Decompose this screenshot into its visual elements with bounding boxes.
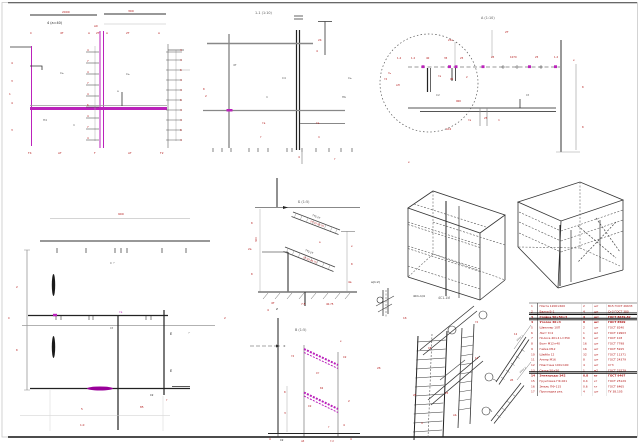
- table-cell: 1: [531, 304, 533, 308]
- table-cell: 8: [583, 358, 585, 362]
- annotation-label: А: [158, 31, 160, 35]
- table-cell: Прокладка рез.: [540, 390, 564, 394]
- annotation-label: 40.75: [326, 302, 334, 306]
- table-cell: 14: [531, 374, 535, 378]
- annotation-label: т2: [384, 77, 388, 81]
- annotation-label: 4: [316, 49, 318, 53]
- table-cell: кг: [594, 384, 598, 388]
- table-cell: ТУ 38.105: [607, 390, 623, 394]
- annotation-label: 2а: [248, 247, 252, 251]
- annotation-label: АТ: [58, 151, 62, 155]
- annotation-label: 25: [484, 116, 488, 120]
- annotation-label: 1-1 (1:10): [255, 11, 273, 15]
- annotation-label: 40: [426, 56, 430, 60]
- annotation-label: 25: [445, 391, 449, 395]
- table-cell: шт: [594, 326, 599, 330]
- table-cell: 8: [531, 342, 533, 346]
- table-cell: 16: [531, 384, 535, 388]
- annotation-label: т.п: [330, 440, 334, 443]
- table-cell: Уголок 40×4: [540, 320, 561, 324]
- annotation-label: АТ: [128, 151, 132, 155]
- annotation-label: 2: [205, 94, 207, 98]
- annotation-label: 12: [475, 356, 479, 360]
- table-cell: 8: [583, 320, 585, 324]
- annotation-label: ПЬ: [342, 95, 346, 99]
- table-cell: 15: [531, 379, 535, 383]
- table-cell: 0.6: [583, 384, 588, 388]
- annotation-label: 2б: [510, 378, 514, 382]
- drawing-sheet-svg: 1Плита 1200×6002штВ15 ГОСТ 266332Балка Б…: [0, 0, 640, 447]
- annotation-label: 2000: [62, 10, 70, 14]
- table-cell: 4: [583, 363, 585, 367]
- annotation-label: С2: [280, 438, 284, 442]
- annotation-label: 1.2: [554, 55, 558, 59]
- annotation-label: С5: [428, 346, 432, 350]
- annotation-label: 2б: [377, 366, 381, 370]
- table-cell: ГОСТ 11371: [608, 352, 626, 356]
- table-cell: ГОСТ 9467: [608, 374, 625, 378]
- annotation-label: А: [88, 31, 90, 35]
- table-cell: 4: [531, 320, 533, 324]
- annotation-label: 25: [491, 55, 495, 59]
- table-cell: кг: [594, 379, 598, 383]
- table-cell: 0.8: [583, 374, 588, 378]
- annotation-label: об: [301, 439, 305, 443]
- annotation-label: б: [16, 348, 18, 352]
- annotation-label: а(1:2): [371, 280, 380, 284]
- annotation-label: б: [284, 390, 286, 394]
- annotation-label: АЬ: [453, 413, 457, 417]
- table-cell: шт: [594, 352, 599, 356]
- annotation-label: В (1:5): [295, 328, 307, 332]
- annotation-label: 25: [413, 393, 417, 397]
- annotation-label: б: [203, 87, 205, 91]
- annotation-label: 4: [298, 155, 300, 159]
- annotation-label: С4: [282, 76, 286, 80]
- annotation-label: п: [318, 135, 320, 139]
- annotation-label: та: [438, 75, 442, 78]
- annotation-label: 25: [535, 55, 539, 59]
- annotation-label: ть: [388, 72, 392, 75]
- table-cell: 9: [531, 347, 533, 351]
- annotation-label: 3: [11, 128, 13, 132]
- table-cell: 6: [583, 336, 585, 340]
- annotation-label: 5: [81, 407, 83, 411]
- annotation-label: Сь: [60, 71, 64, 75]
- annotation-label: Ст: [316, 371, 320, 375]
- table-cell: 5: [531, 326, 533, 330]
- table-cell: шт: [594, 363, 599, 367]
- table-cell: ГОСТ 7798: [608, 342, 624, 346]
- table-cell: 2: [583, 304, 585, 308]
- table-cell: ГОСТ 24379: [608, 358, 626, 362]
- annotation-label: 4: [267, 308, 269, 312]
- annotation-label: 1б: [403, 316, 407, 320]
- table-cell: шт: [594, 304, 599, 308]
- table-cell: шт: [594, 320, 599, 324]
- annotation-label: к: [573, 58, 575, 62]
- table-cell: Электроды Э42: [540, 374, 566, 378]
- annotation-label: 4С1-1/4: [413, 294, 425, 298]
- table-cell: Плита 1200×600: [540, 304, 566, 308]
- annotation-label: та: [262, 121, 266, 125]
- table-cell: 11: [531, 358, 535, 362]
- cad-sheet: 1Плита 1200×6002штВ15 ГОСТ 266332Балка Б…: [0, 0, 640, 447]
- annotation-label: 85: [140, 405, 144, 409]
- annotation-label: 4Т: [233, 63, 237, 67]
- annotation-label: 4: [11, 61, 13, 65]
- annotation-label: 4а: [348, 280, 352, 284]
- annotation-label: А0: [94, 24, 98, 28]
- table-cell: шт: [594, 358, 599, 362]
- table-cell: 7: [531, 336, 533, 340]
- table-cell: ГОСТ 103: [608, 336, 622, 340]
- annotation-label: Сь: [348, 76, 352, 80]
- annotation-label: т2: [475, 320, 479, 324]
- annotation-label: п: [73, 123, 75, 127]
- annotation-label: 05: [450, 77, 454, 81]
- annotation-label: А: [106, 31, 108, 35]
- annotation-label: 2Т: [505, 30, 509, 34]
- table-cell: 2: [583, 326, 585, 330]
- annotation-label: к: [408, 160, 410, 164]
- annotation-label: А (1:10): [481, 16, 495, 20]
- table-cell: Анкер М16: [540, 358, 556, 362]
- annotation-label: 7.5: [301, 302, 306, 306]
- annotation-label: 300: [128, 9, 134, 13]
- table-cell: Грунтовка ГФ-021: [540, 379, 568, 383]
- annotation-label: 4: [11, 101, 13, 105]
- table-cell: 10: [531, 352, 535, 356]
- annotation-label: 1070: [510, 55, 517, 59]
- table-cell: 17: [531, 390, 535, 394]
- annotation-label: 4 (а=40): [47, 21, 63, 25]
- annotation-label: 900: [118, 212, 124, 216]
- annotation-label: б: [582, 125, 584, 129]
- annotation-label: т2: [291, 354, 295, 358]
- annotation-label: 2: [16, 285, 18, 289]
- annotation-label: 3: [11, 79, 13, 83]
- annotation-label: 3: [284, 411, 286, 415]
- table-cell: шт: [594, 390, 599, 394]
- annotation-label: Т: [93, 151, 96, 155]
- annotation-label: 1: [9, 92, 11, 96]
- table-cell: ГОСТ 25129: [608, 379, 626, 383]
- annotation-label: 35: [444, 56, 448, 60]
- annotation-label: 300: [254, 237, 258, 242]
- annotation-label: Т2: [159, 151, 164, 155]
- annotation-label: Т4: [27, 151, 32, 155]
- table-cell: кг: [594, 374, 598, 378]
- table-cell: шт: [594, 342, 599, 346]
- annotation-label: 2: [224, 316, 226, 320]
- table-cell: ГОСТ 6465: [608, 384, 624, 388]
- annotation-label: 2Т: [96, 31, 100, 35]
- annotation-label: б: [351, 262, 353, 266]
- table-cell: 4: [583, 390, 585, 394]
- annotation-label: к: [351, 244, 353, 248]
- table-cell: 16: [583, 342, 587, 346]
- annotation-label: 2: [348, 399, 350, 403]
- table-cell: Болт М12×40: [540, 342, 561, 346]
- annotation-label: 24: [318, 38, 322, 42]
- table-cell: Ст3: [608, 363, 614, 367]
- annotation-label: п: [266, 95, 268, 99]
- table-cell: 12: [531, 363, 535, 367]
- annotation-label: 4: [343, 423, 345, 427]
- annotation-label: та: [316, 121, 320, 125]
- table-cell: Шайба 12: [540, 352, 555, 356]
- table-cell: 6: [531, 331, 533, 335]
- table-cell: Эмаль ПФ-115: [540, 384, 562, 388]
- annotation-label: С: [30, 31, 32, 35]
- annotation-label: 4Т: [271, 301, 275, 305]
- annotation-label: 12: [514, 332, 518, 336]
- annotation-label: Z: [276, 307, 278, 311]
- table-cell: ГОСТ 5915: [608, 347, 624, 351]
- annotation-label: 4С1-1И: [438, 296, 450, 300]
- annotation-label: б: [251, 221, 253, 225]
- table-cell: В15 ГОСТ 26633: [608, 304, 633, 308]
- annotation-label: АП: [396, 83, 400, 87]
- annotation-label: П4: [43, 118, 47, 122]
- annotation-label: а: [117, 89, 119, 93]
- annotation-label: 4Т: [60, 31, 64, 35]
- annotation-label: Б (1:5): [298, 200, 310, 204]
- annotation-label: 1.4: [397, 56, 401, 60]
- annotation-label: б: [251, 272, 253, 276]
- annotation-label: та: [119, 310, 123, 314]
- table-cell: шт: [594, 336, 599, 340]
- annotation-label: С ⌐: [110, 261, 116, 265]
- table-cell: ГОСТ 19903: [608, 331, 626, 335]
- annotation-label: Сь: [126, 72, 130, 76]
- annotation-label: та: [468, 119, 472, 122]
- annotation-label: б2: [320, 386, 324, 390]
- table-cell: 16: [583, 347, 587, 351]
- table-cell: м2: [594, 331, 598, 335]
- table-cell: 32: [583, 352, 587, 356]
- table-cell: Швеллер 10П: [540, 326, 561, 330]
- annotation-label: 25: [460, 56, 464, 60]
- table-cell: Пластина 100×100: [540, 363, 569, 367]
- table-cell: шт: [594, 347, 599, 351]
- annotation-label: С2: [343, 355, 347, 359]
- annotation-label: 1.0: [80, 423, 85, 427]
- annotation-label: С2: [436, 93, 440, 97]
- annotation-label: 1.2: [411, 56, 415, 60]
- annotation-label: 900: [456, 99, 461, 103]
- parts-table: 1Плита 1200×6002штВ15 ГОСТ 266332Балка Б…: [529, 304, 637, 394]
- annotation-label: 25а: [448, 38, 453, 42]
- table-cell: Гайка М12: [540, 347, 556, 351]
- table-cell: Лист t=4: [540, 331, 554, 335]
- table-cell: ГОСТ 8240: [608, 326, 624, 330]
- table-cell: 1: [583, 331, 585, 335]
- annotation-label: С2: [308, 404, 312, 408]
- annotation-label: 2Т: [126, 31, 130, 35]
- table-cell: ГОСТ 8509: [608, 320, 625, 324]
- annotation-label: АС2: [446, 127, 452, 131]
- annotation-label: п: [498, 119, 500, 122]
- table-cell: 0.4: [583, 379, 588, 383]
- annotation-label: С2: [150, 393, 154, 397]
- annotation-label: С: [8, 316, 10, 320]
- annotation-label: б: [582, 85, 584, 89]
- table-cell: Полоса 40×4 L=350: [540, 336, 570, 340]
